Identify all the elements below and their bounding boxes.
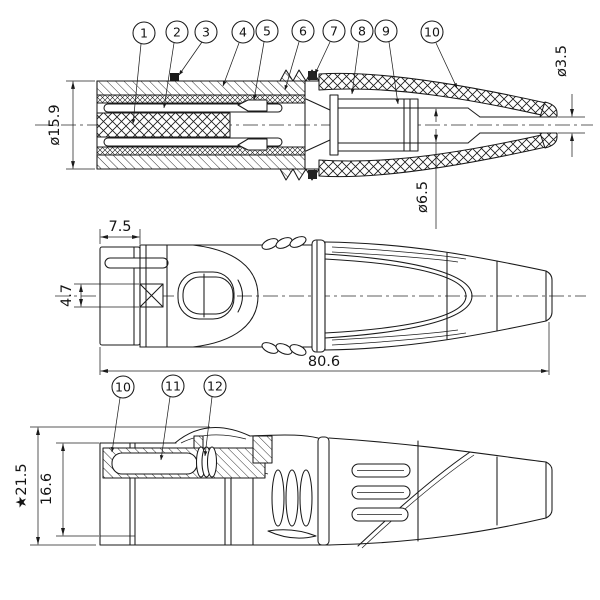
dim-rear-depth: 7.5 xyxy=(100,219,140,244)
svg-text:10: 10 xyxy=(424,25,440,40)
bottom-grip xyxy=(268,437,329,545)
callout-1: 1 xyxy=(133,22,155,44)
callout-7: 7 xyxy=(323,20,345,42)
callout-6: 6 xyxy=(292,20,314,42)
latch-pivot xyxy=(194,436,203,448)
latch-mechanism-section xyxy=(103,436,272,478)
bottom-clamp-band xyxy=(318,437,329,545)
dim-latch-slot-label: 4.7 xyxy=(59,284,75,307)
keying-tab xyxy=(170,73,179,81)
callout-10b: 10 xyxy=(112,376,134,398)
section-callouts: 1 2 3 4 5 6 7 8 9 10 xyxy=(133,20,443,44)
callout-2: 2 xyxy=(166,21,188,43)
latch-screw xyxy=(140,284,163,307)
svg-text:1: 1 xyxy=(140,26,148,41)
dim-overall-height-label: ★21.5 xyxy=(14,463,30,508)
seal-lower xyxy=(308,170,317,179)
grip-lens xyxy=(268,530,316,538)
dim-cable-exit-diameter: ø3.5 xyxy=(554,45,585,157)
bottom-callouts: 10 11 12 xyxy=(112,375,226,398)
dim-bore-diameter-label: ø6.5 xyxy=(415,181,431,213)
callout-8: 8 xyxy=(351,20,373,42)
callout-11: 11 xyxy=(162,375,184,397)
technical-drawing: ø15.9 ø3.5 ø6.5 xyxy=(0,0,600,600)
svg-text:10: 10 xyxy=(115,380,131,395)
svg-text:2: 2 xyxy=(173,25,181,40)
callout-5: 5 xyxy=(256,20,278,42)
dim-body-diameter-label: ø15.9 xyxy=(47,104,63,145)
svg-text:5: 5 xyxy=(263,24,271,39)
dim-rear-depth-label: 7.5 xyxy=(108,219,131,235)
section-view: ø15.9 ø3.5 ø6.5 xyxy=(35,20,593,229)
svg-text:4: 4 xyxy=(239,25,247,40)
boot-vent-slots xyxy=(352,464,410,521)
dim-shell-height: 16.6 xyxy=(39,443,99,536)
ground-pin xyxy=(105,258,168,268)
svg-text:12: 12 xyxy=(207,379,223,394)
callout-12: 12 xyxy=(204,375,226,397)
dim-overall-length-label: 80.6 xyxy=(308,354,340,370)
insulator-insert xyxy=(97,113,230,137)
bottom-boot xyxy=(329,438,552,548)
latch-lever-slot xyxy=(112,453,197,474)
svg-text:6: 6 xyxy=(299,24,307,39)
dim-shell-height-label: 16.6 xyxy=(39,473,55,505)
rear-shell xyxy=(100,247,168,345)
cable-chuck xyxy=(306,95,468,155)
svg-text:9: 9 xyxy=(382,24,390,39)
side-view: 7.5 4.7 80.6 xyxy=(55,219,586,375)
latch-spring xyxy=(197,447,217,477)
callout-4: 4 xyxy=(232,21,254,43)
clamp-band xyxy=(312,240,325,352)
latch-button xyxy=(178,272,243,319)
callout-3: 3 xyxy=(195,21,217,43)
bottom-view: ★21.5 16.6 10 11 12 xyxy=(14,375,552,548)
callout-9: 9 xyxy=(375,20,397,42)
latch-stop-block xyxy=(253,436,272,463)
svg-text:3: 3 xyxy=(202,25,210,40)
dim-cable-exit-diameter-label: ø3.5 xyxy=(554,45,570,77)
svg-text:8: 8 xyxy=(358,24,366,39)
svg-text:11: 11 xyxy=(165,379,181,394)
callout-10: 10 xyxy=(421,21,443,43)
svg-text:7: 7 xyxy=(330,24,338,39)
